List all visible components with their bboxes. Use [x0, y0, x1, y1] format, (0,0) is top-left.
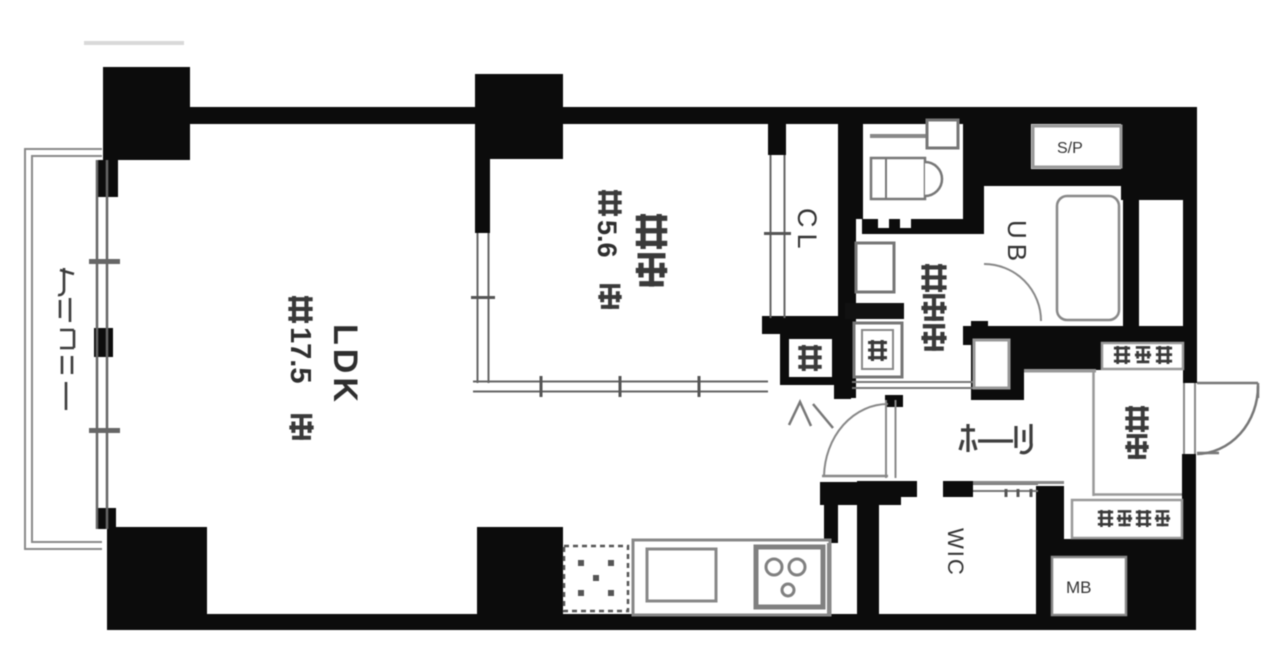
svg-text:S/P: S/P — [1057, 140, 1083, 157]
svg-text:CL: CL — [792, 208, 822, 255]
svg-text:MB: MB — [1066, 578, 1092, 597]
svg-text:WIC: WIC — [943, 528, 968, 577]
svg-text:17.5: 17.5 — [284, 327, 316, 383]
svg-text:5.6: 5.6 — [592, 220, 622, 258]
svg-text:LDK: LDK — [326, 324, 364, 406]
svg-text:UB: UB — [1002, 220, 1032, 266]
